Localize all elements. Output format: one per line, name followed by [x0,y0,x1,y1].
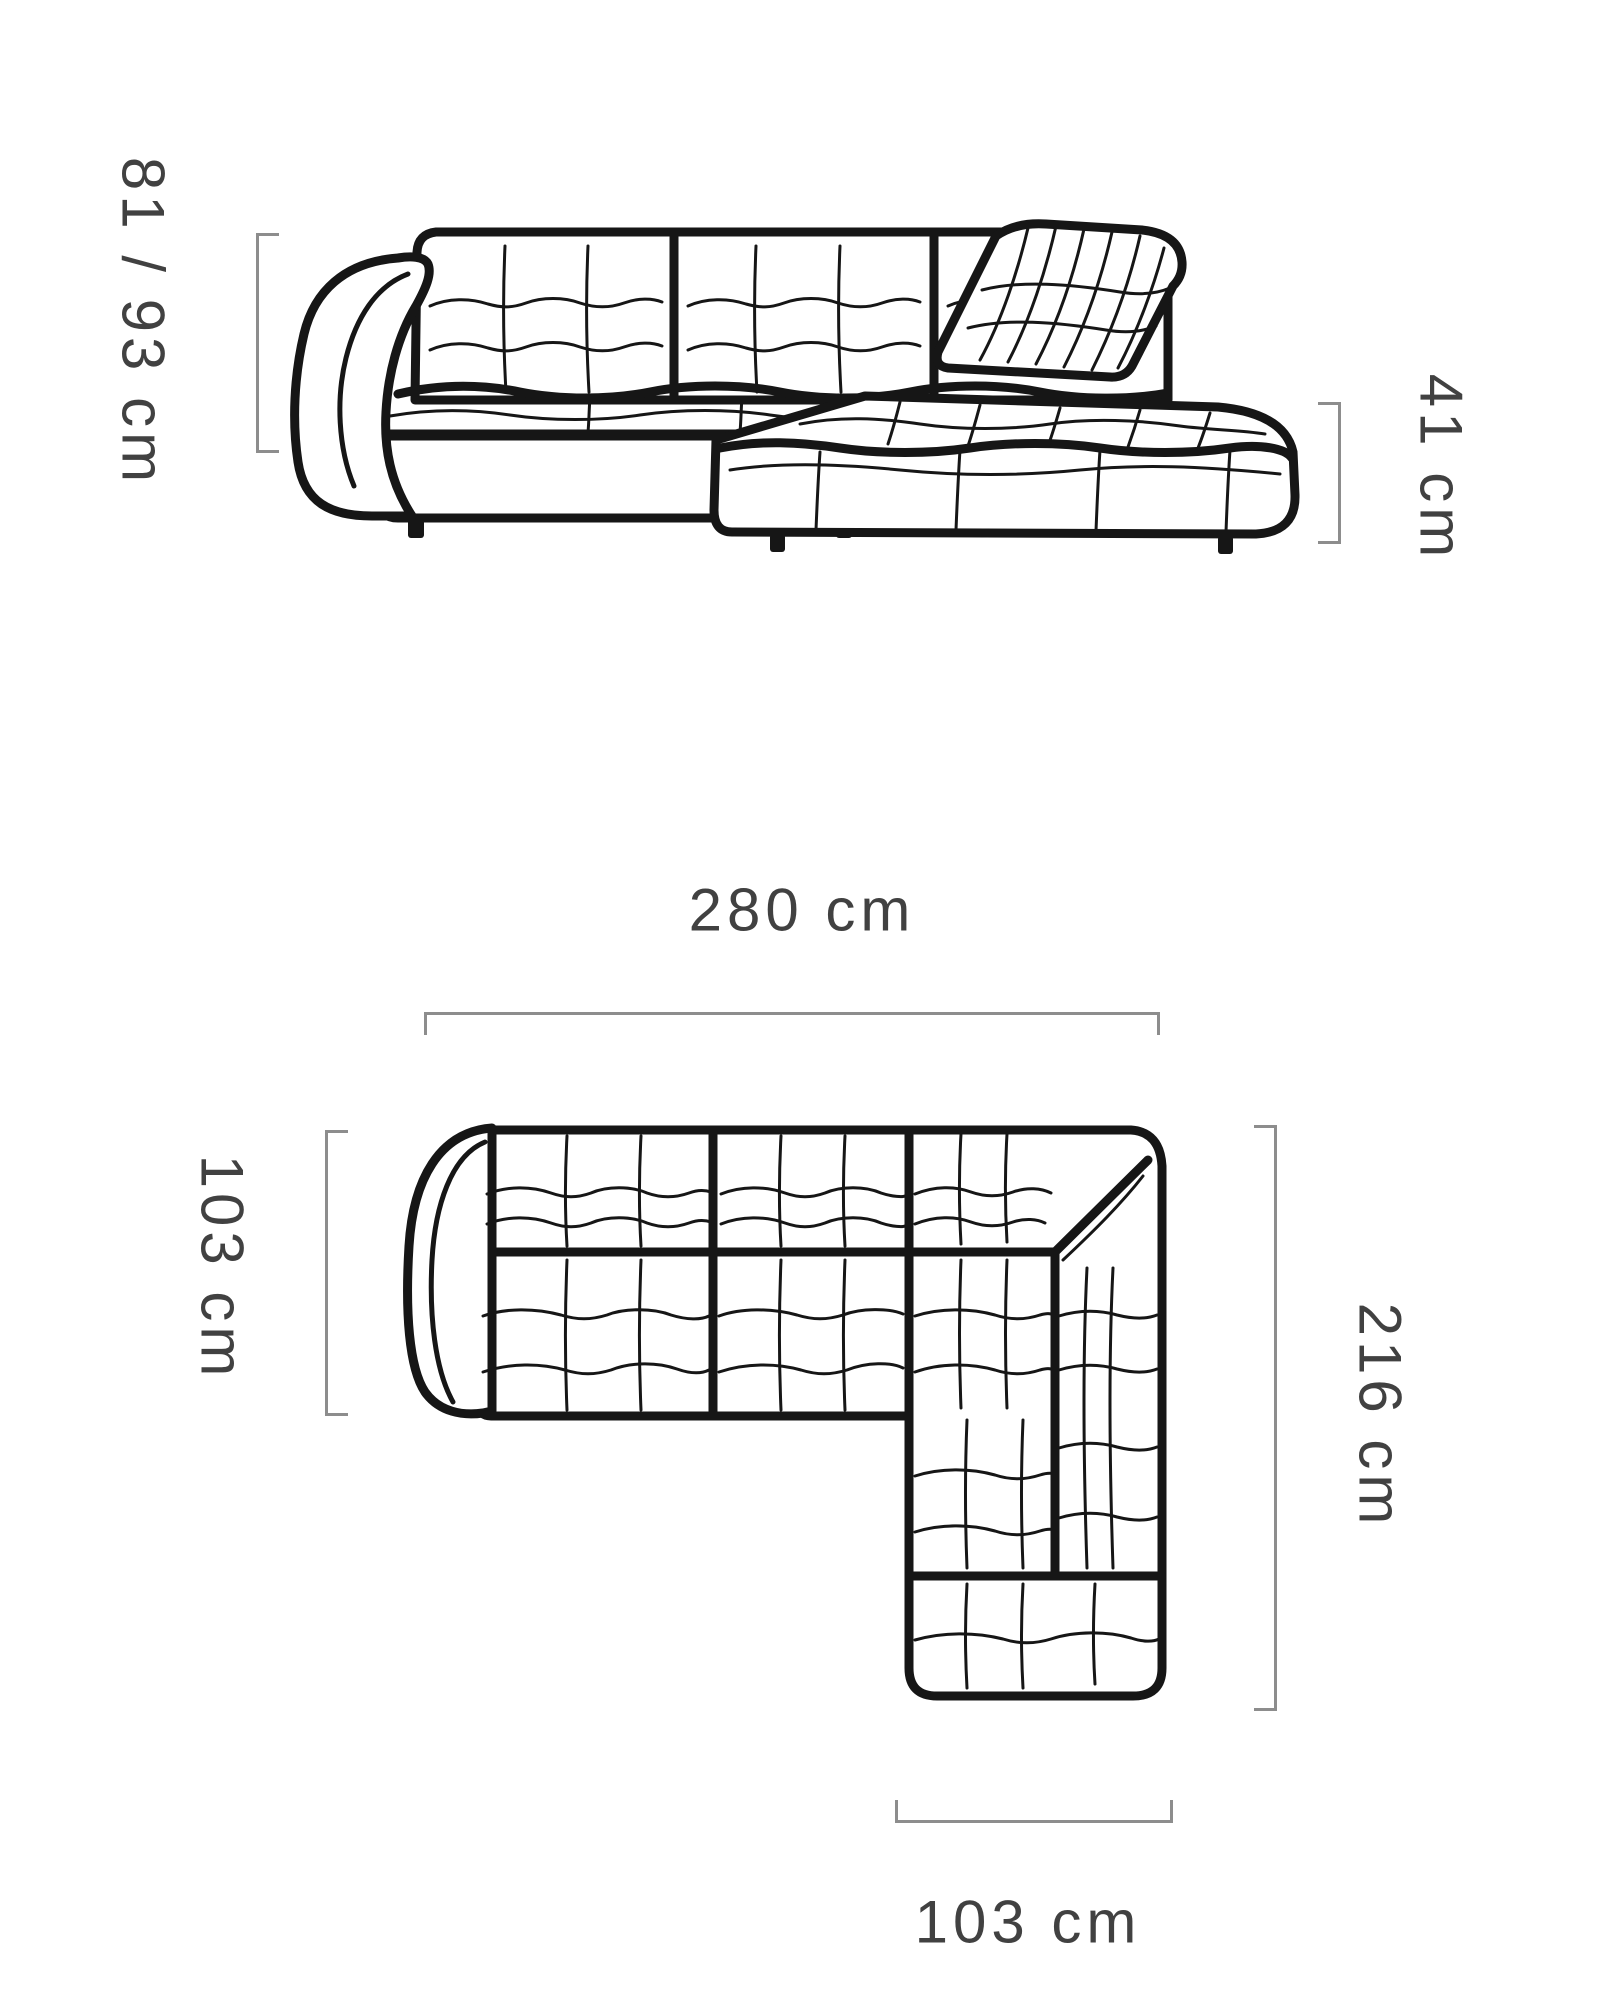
height-dimension-label: 81 / 93 cm [109,157,178,487]
height-bracket [256,233,279,453]
sofa-top-view-drawing [395,1118,1185,1718]
depth-dimension-label: 103 cm [188,1155,257,1382]
width-bracket [424,1012,1160,1035]
side-length-bracket [1254,1125,1277,1711]
sofa-side-view-drawing [280,150,1340,570]
side-length-dimension-label: 216 cm [1346,1303,1415,1530]
chaise-width-dimension-label: 103 cm [915,1888,1142,1957]
dimension-diagram: 81 / 93 cm 41 cm [0,0,1620,2000]
chaise-width-bracket [895,1800,1173,1823]
seat-height-bracket [1318,402,1341,544]
depth-bracket [325,1130,348,1416]
width-dimension-label: 280 cm [689,876,916,945]
seat-height-dimension-label: 41 cm [1407,374,1476,562]
